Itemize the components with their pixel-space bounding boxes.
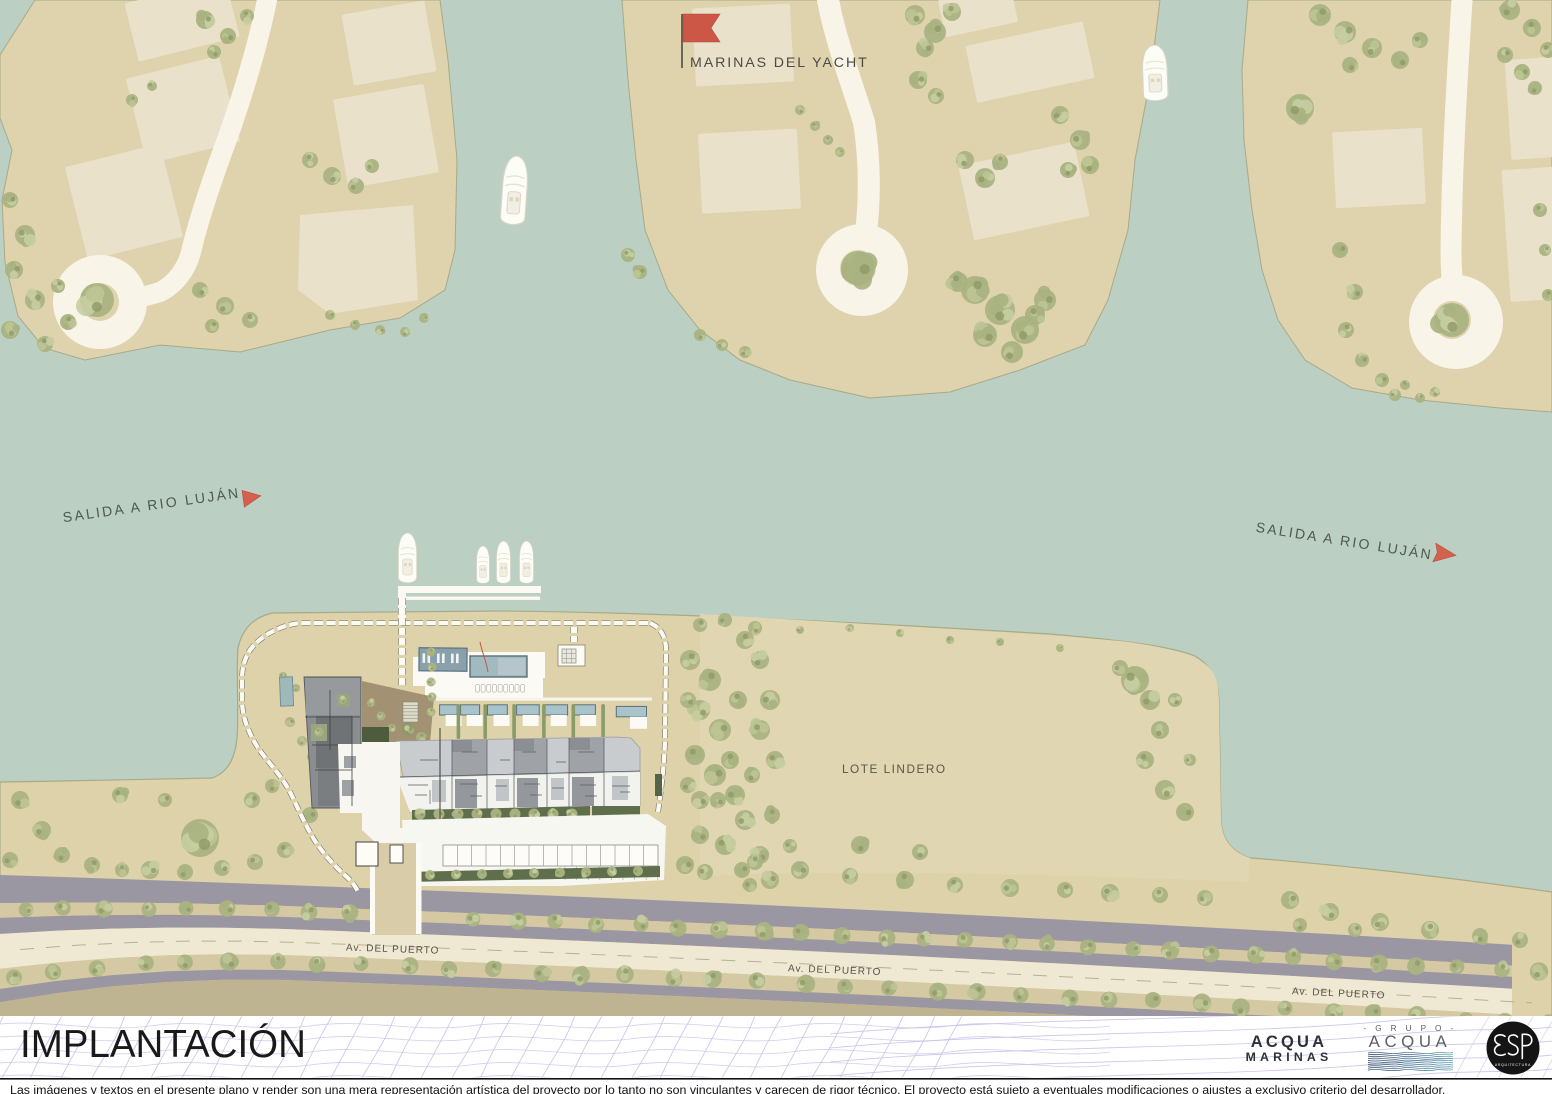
svg-text:IMPLANTACIÓN: IMPLANTACIÓN (20, 1023, 306, 1066)
svg-text:MARINAS DEL YACHT: MARINAS DEL YACHT (690, 55, 869, 71)
svg-text:Las imágenes y textos en el pr: Las imágenes y textos en el presente pla… (10, 1083, 1445, 1094)
svg-text:ARQUITECTURA: ARQUITECTURA (1495, 1063, 1531, 1067)
svg-text:ACQUA: ACQUA (1369, 1032, 1452, 1051)
svg-text:MARINAS: MARINAS (1246, 1050, 1333, 1064)
svg-text:ACQUA: ACQUA (1251, 1033, 1328, 1051)
svg-text:LOTE LINDERO: LOTE LINDERO (842, 762, 947, 776)
